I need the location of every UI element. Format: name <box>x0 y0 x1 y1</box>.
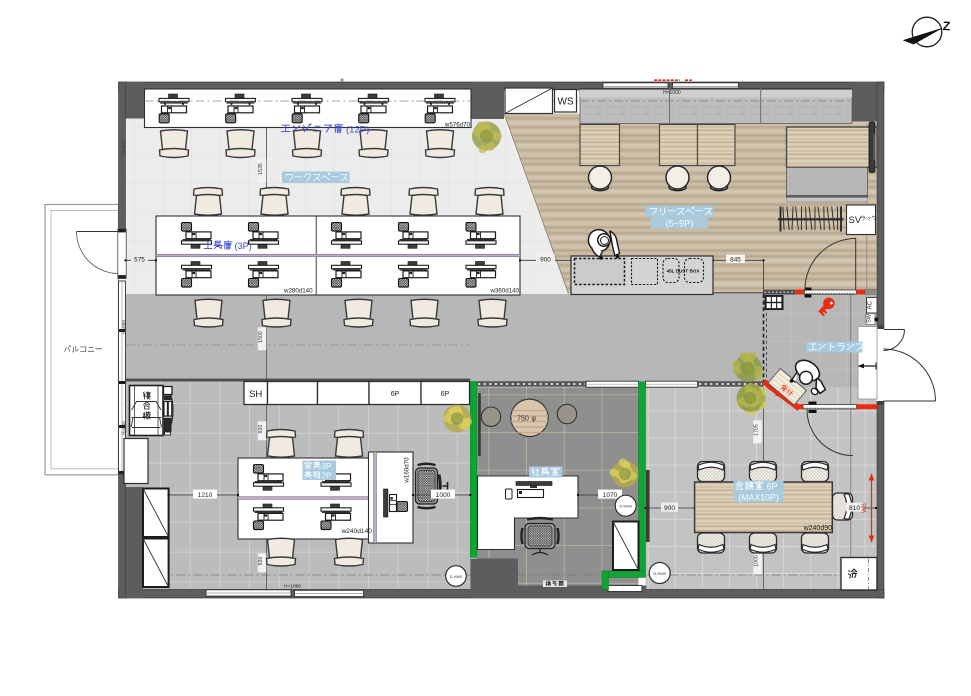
svg-text:AC: AC <box>868 300 874 309</box>
svg-text:D-HW0: D-HW0 <box>619 505 631 509</box>
svg-text:w240d140: w240d140 <box>341 528 373 535</box>
svg-text:H=1060: H=1060 <box>284 583 301 589</box>
svg-text:H=889: H=889 <box>121 320 126 334</box>
svg-text:w360d140: w360d140 <box>489 288 519 295</box>
svg-text:1070: 1070 <box>603 492 618 499</box>
svg-text:D-HW0: D-HW0 <box>653 572 665 576</box>
svg-text:750: 750 <box>517 416 529 423</box>
svg-text:1705: 1705 <box>754 424 760 436</box>
svg-text:SV: SV <box>849 215 862 226</box>
svg-text:H=920: H=920 <box>121 140 126 154</box>
svg-text:900: 900 <box>664 505 675 512</box>
svg-text:920: 920 <box>258 425 264 434</box>
svg-text:810: 810 <box>849 505 860 512</box>
svg-text:H=1000: H=1000 <box>663 90 681 96</box>
svg-text:3P: 3P <box>322 462 332 471</box>
svg-text:H=800: H=800 <box>121 421 126 435</box>
svg-text:2P: 2P <box>322 471 332 480</box>
svg-text:6P: 6P <box>441 391 450 398</box>
svg-text:w280d140: w280d140 <box>283 288 313 295</box>
svg-text:1535: 1535 <box>258 163 264 175</box>
svg-text:w576d70: w576d70 <box>444 121 471 128</box>
svg-text:900: 900 <box>540 256 551 263</box>
svg-text:WS: WS <box>557 97 573 108</box>
svg-text:45L DUST BOX: 45L DUST BOX <box>667 269 701 274</box>
svg-text:SW: SW <box>867 313 873 323</box>
svg-text:6P: 6P <box>391 391 400 398</box>
svg-text:Z: Z <box>942 19 951 33</box>
svg-text:(3P): (3P) <box>235 241 252 251</box>
svg-text:1000: 1000 <box>754 555 760 567</box>
svg-text:w160d70: w160d70 <box>404 457 411 484</box>
svg-text:845: 845 <box>730 256 741 263</box>
svg-text:(MAX10P): (MAX10P) <box>738 492 779 502</box>
svg-text:1210: 1210 <box>198 492 213 499</box>
svg-text:920: 920 <box>258 557 264 566</box>
svg-text:WB: WB <box>862 503 868 513</box>
svg-text:(5~9P): (5~9P) <box>666 219 694 229</box>
svg-text:575: 575 <box>134 256 145 263</box>
svg-text:SH: SH <box>249 389 262 400</box>
svg-text:6P: 6P <box>767 482 778 492</box>
svg-text:D-HW0: D-HW0 <box>450 575 462 579</box>
svg-text:φ: φ <box>532 416 537 423</box>
svg-text:w240d90: w240d90 <box>803 525 833 532</box>
svg-text:1000: 1000 <box>436 492 451 499</box>
svg-text:1500: 1500 <box>258 331 264 343</box>
svg-text:(12P): (12P) <box>346 124 369 135</box>
